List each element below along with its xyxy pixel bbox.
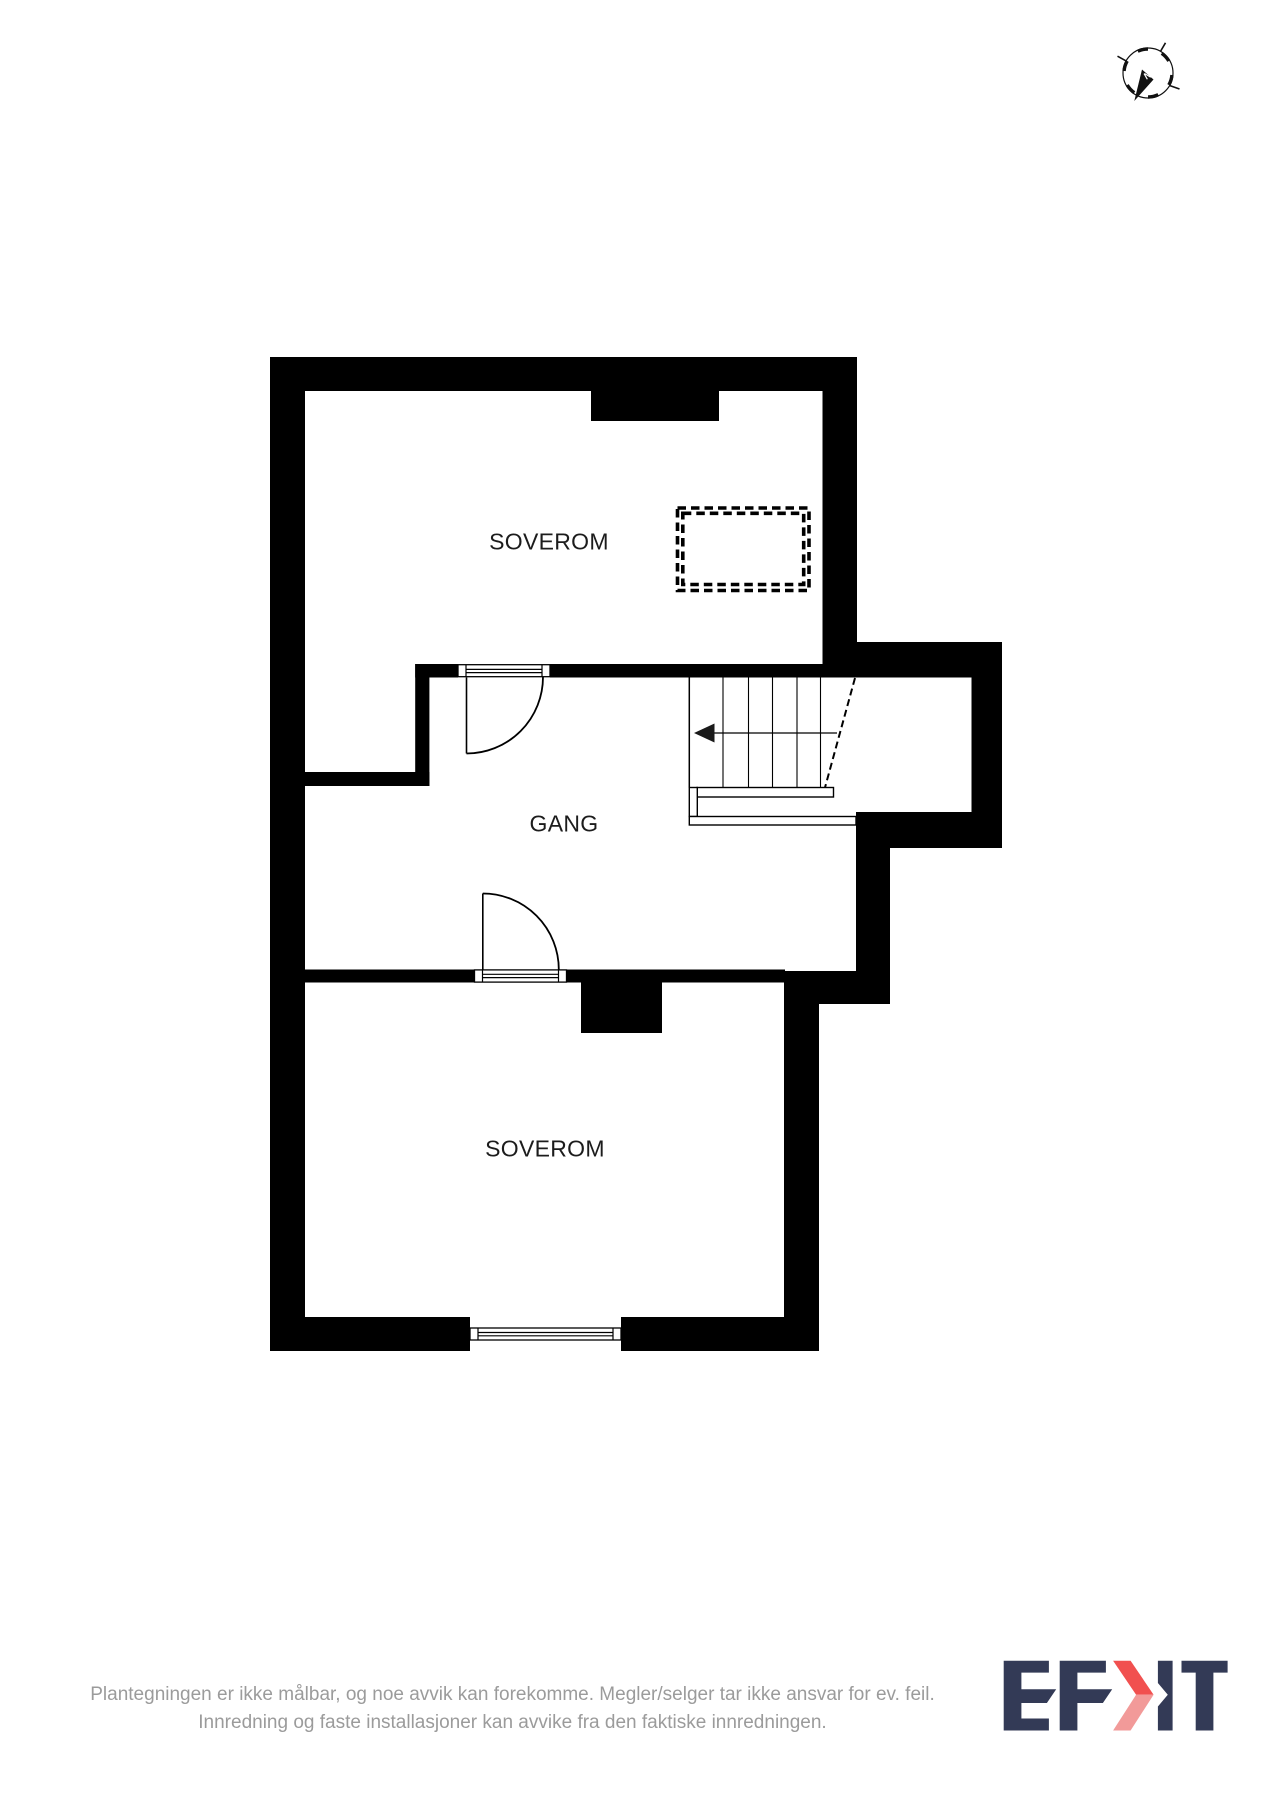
svg-text:SOVEROM: SOVEROM [485,1136,605,1162]
svg-text:SOVEROM: SOVEROM [489,529,609,555]
svg-text:Innredning og faste installasj: Innredning og faste installasjoner kan a… [198,1712,826,1733]
svg-text:Plantegningen er ikke målbar,: Plantegningen er ikke målbar, og noe avv… [90,1684,935,1705]
svg-text:GANG: GANG [530,811,599,837]
